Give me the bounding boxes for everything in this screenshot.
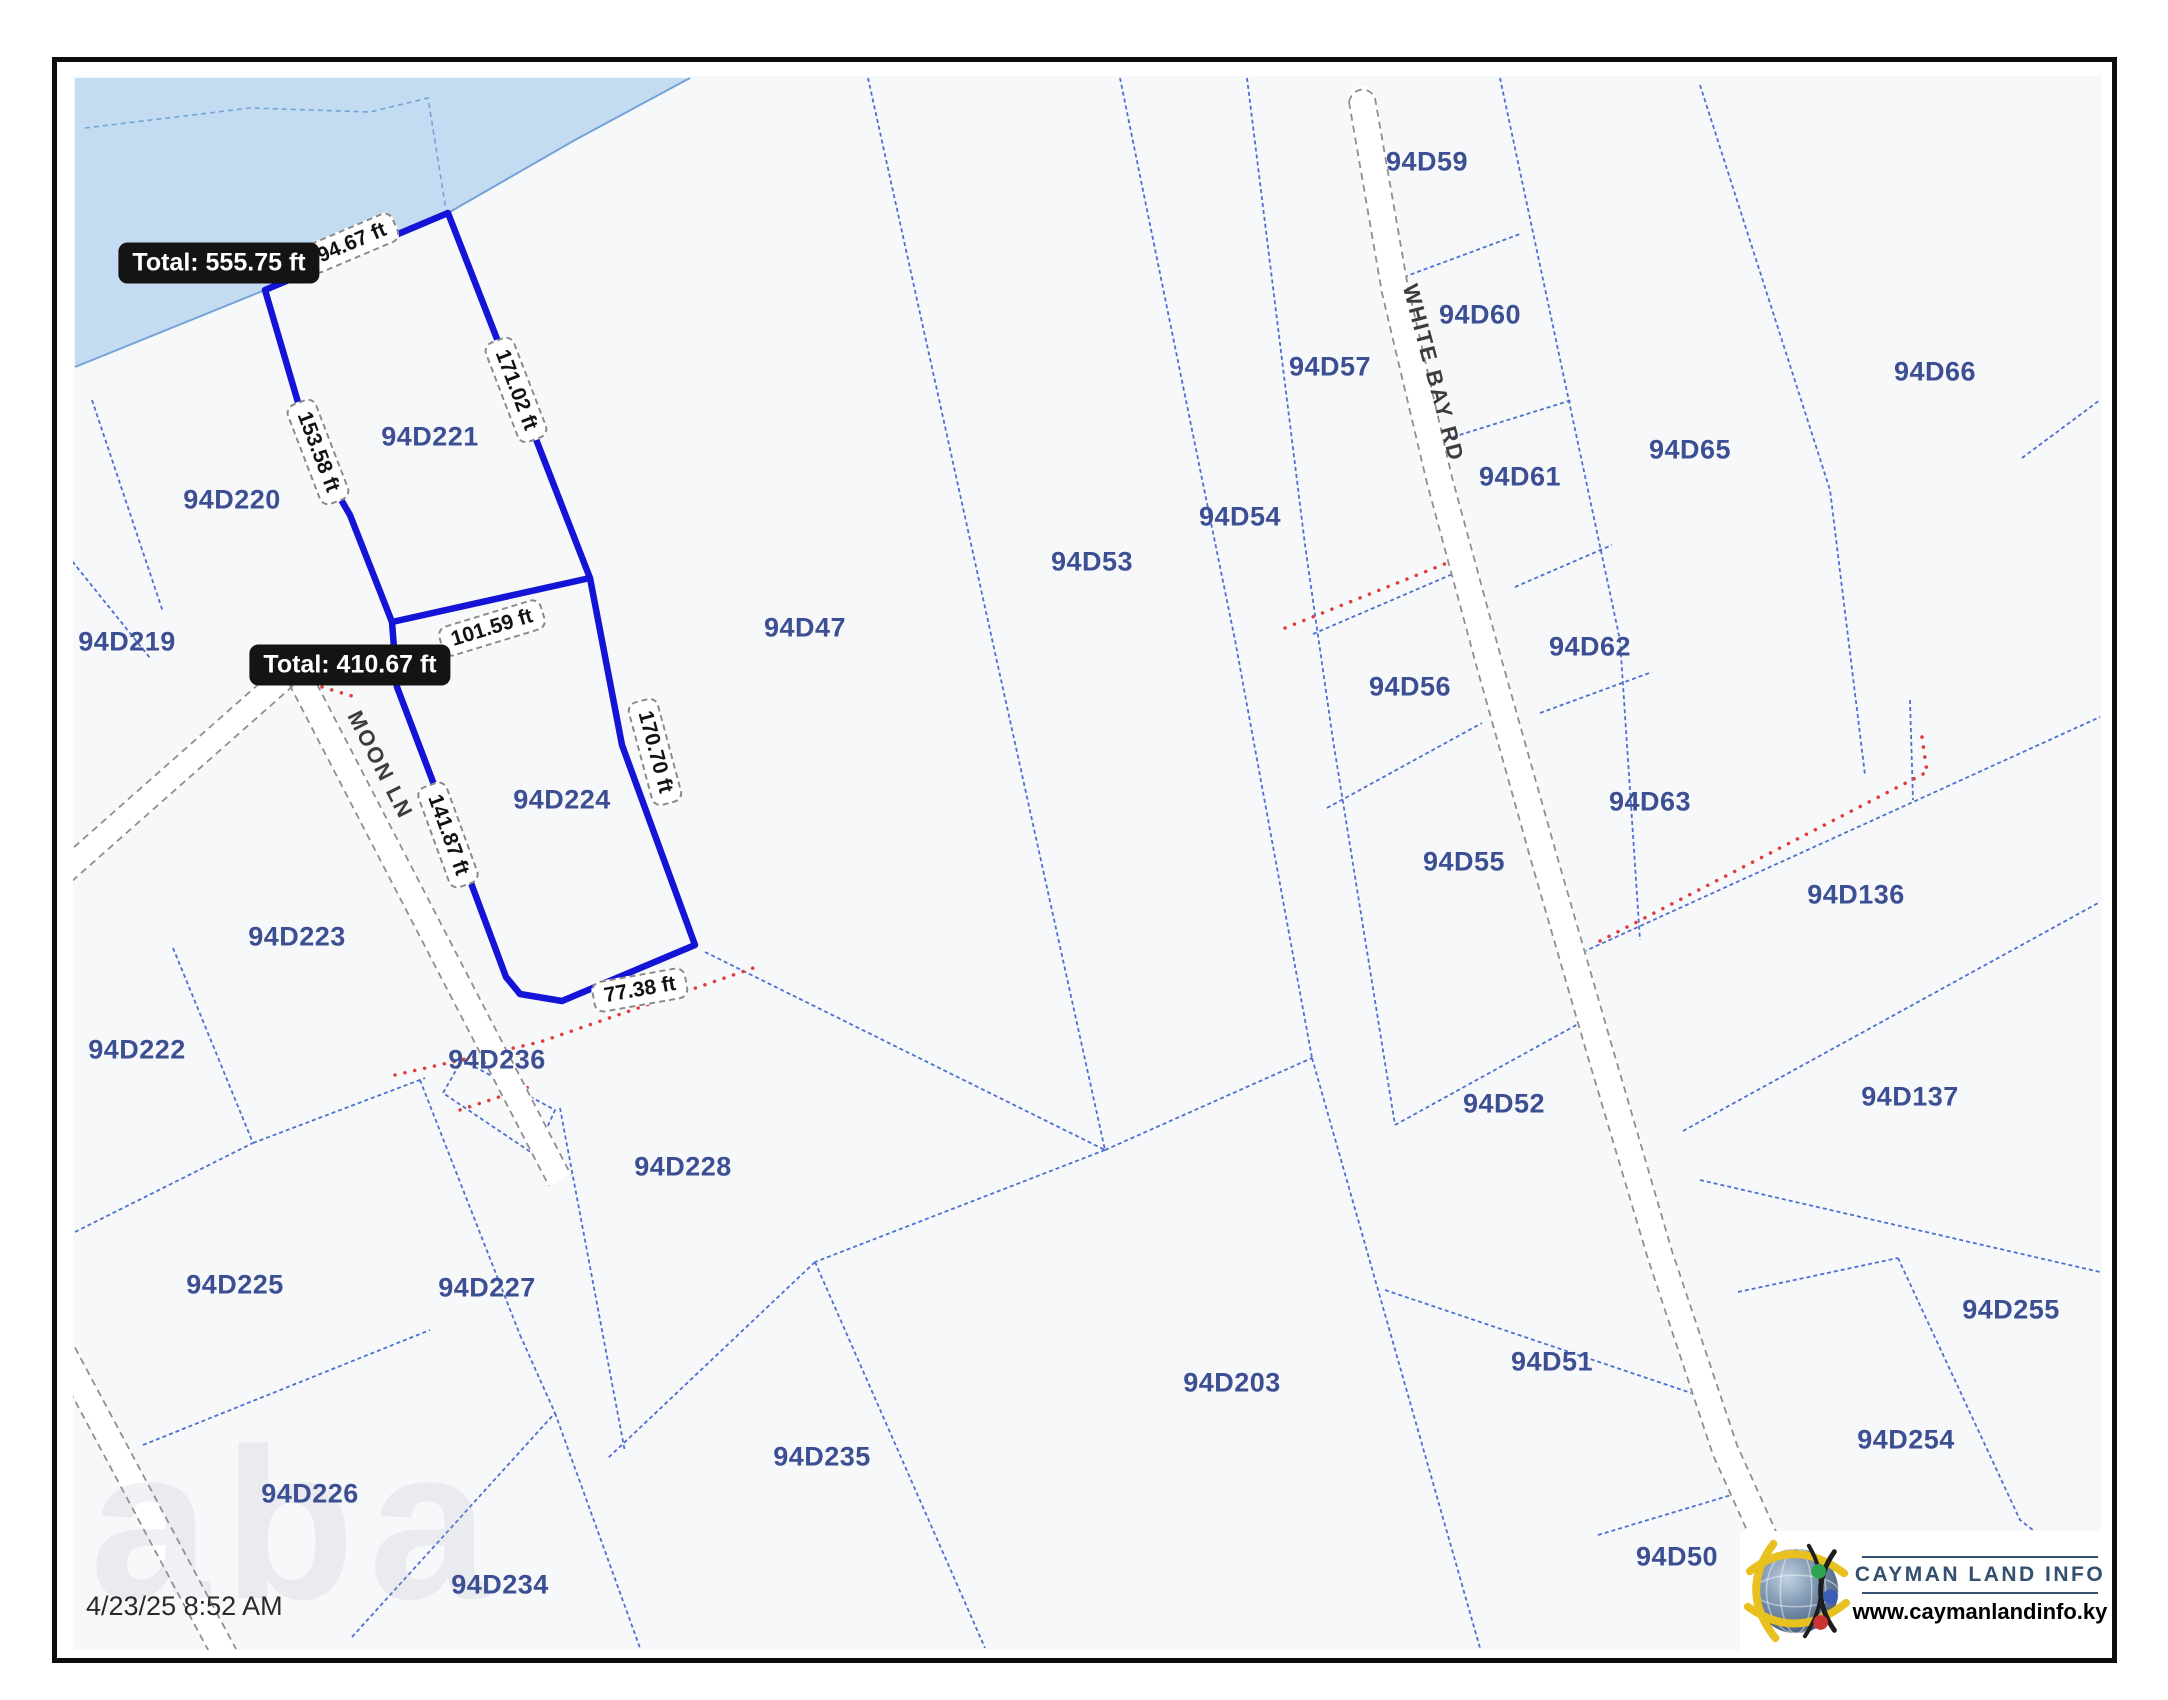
parcel-label-94D255[interactable]: 94D255 [1962, 1295, 2060, 1326]
logo-rule-bottom [1862, 1592, 2098, 1594]
logo-brand: CAYMAN LAND INFO [1855, 1563, 2105, 1587]
logo-rule-top [1862, 1556, 2098, 1558]
parcel-label-94D62[interactable]: 94D62 [1549, 632, 1631, 663]
parcel-label-94D228[interactable]: 94D228 [634, 1152, 732, 1183]
map-background [73, 76, 2102, 1650]
parcel-label-94D59[interactable]: 94D59 [1386, 147, 1468, 178]
parcel-label-94D66[interactable]: 94D66 [1894, 357, 1976, 388]
total-tooltip: Total: 555.75 ft [118, 243, 319, 284]
parcel-label-94D234[interactable]: 94D234 [451, 1570, 549, 1601]
parcel-label-94D60[interactable]: 94D60 [1439, 300, 1521, 331]
parcel-label-94D53[interactable]: 94D53 [1051, 547, 1133, 578]
parcel-label-94D236[interactable]: 94D236 [448, 1045, 546, 1076]
parcel-label-94D254[interactable]: 94D254 [1857, 1425, 1955, 1456]
parcel-label-94D54[interactable]: 94D54 [1199, 502, 1281, 533]
parcel-label-94D137[interactable]: 94D137 [1861, 1082, 1959, 1113]
parcel-label-94D61[interactable]: 94D61 [1479, 462, 1561, 493]
parcel-label-94D224[interactable]: 94D224 [513, 785, 611, 816]
parcel-label-94D65[interactable]: 94D65 [1649, 435, 1731, 466]
parcel-label-94D51[interactable]: 94D51 [1511, 1347, 1593, 1378]
map-canvas[interactable] [73, 76, 2102, 1650]
total-tooltip: Total: 410.67 ft [249, 645, 450, 686]
logo-website-link[interactable]: www.caymanlandinfo.ky [1853, 1599, 2108, 1625]
timestamp: 4/23/25 8:52 AM [86, 1591, 283, 1622]
parcel-label-94D203[interactable]: 94D203 [1183, 1368, 1281, 1399]
parcel-label-94D227[interactable]: 94D227 [438, 1273, 536, 1304]
parcel-label-94D56[interactable]: 94D56 [1369, 672, 1451, 703]
parcel-label-94D221[interactable]: 94D221 [381, 422, 479, 453]
parcel-label-94D223[interactable]: 94D223 [248, 922, 346, 953]
parcel-label-94D226[interactable]: 94D226 [261, 1479, 359, 1510]
parcel-label-94D50[interactable]: 94D50 [1636, 1542, 1718, 1573]
parcel-label-94D225[interactable]: 94D225 [186, 1270, 284, 1301]
logo-panel: CAYMAN LAND INFO www.caymanlandinfo.ky [1740, 1531, 2102, 1650]
parcel-label-94D52[interactable]: 94D52 [1463, 1089, 1545, 1120]
parcel-label-94D136[interactable]: 94D136 [1807, 880, 1905, 911]
map-viewer: aba 94D220 94D221 94D219 94D224 94D223 9… [0, 0, 2168, 1700]
parcel-label-94D220[interactable]: 94D220 [183, 485, 281, 516]
parcel-label-94D222[interactable]: 94D222 [88, 1035, 186, 1066]
globe-icon [1740, 1532, 1858, 1650]
parcel-label-94D63[interactable]: 94D63 [1609, 787, 1691, 818]
parcel-label-94D57[interactable]: 94D57 [1289, 352, 1371, 383]
parcel-label-94D47[interactable]: 94D47 [764, 613, 846, 644]
parcel-label-94D235[interactable]: 94D235 [773, 1442, 871, 1473]
parcel-label-94D55[interactable]: 94D55 [1423, 847, 1505, 878]
parcel-label-94D219[interactable]: 94D219 [78, 627, 176, 658]
